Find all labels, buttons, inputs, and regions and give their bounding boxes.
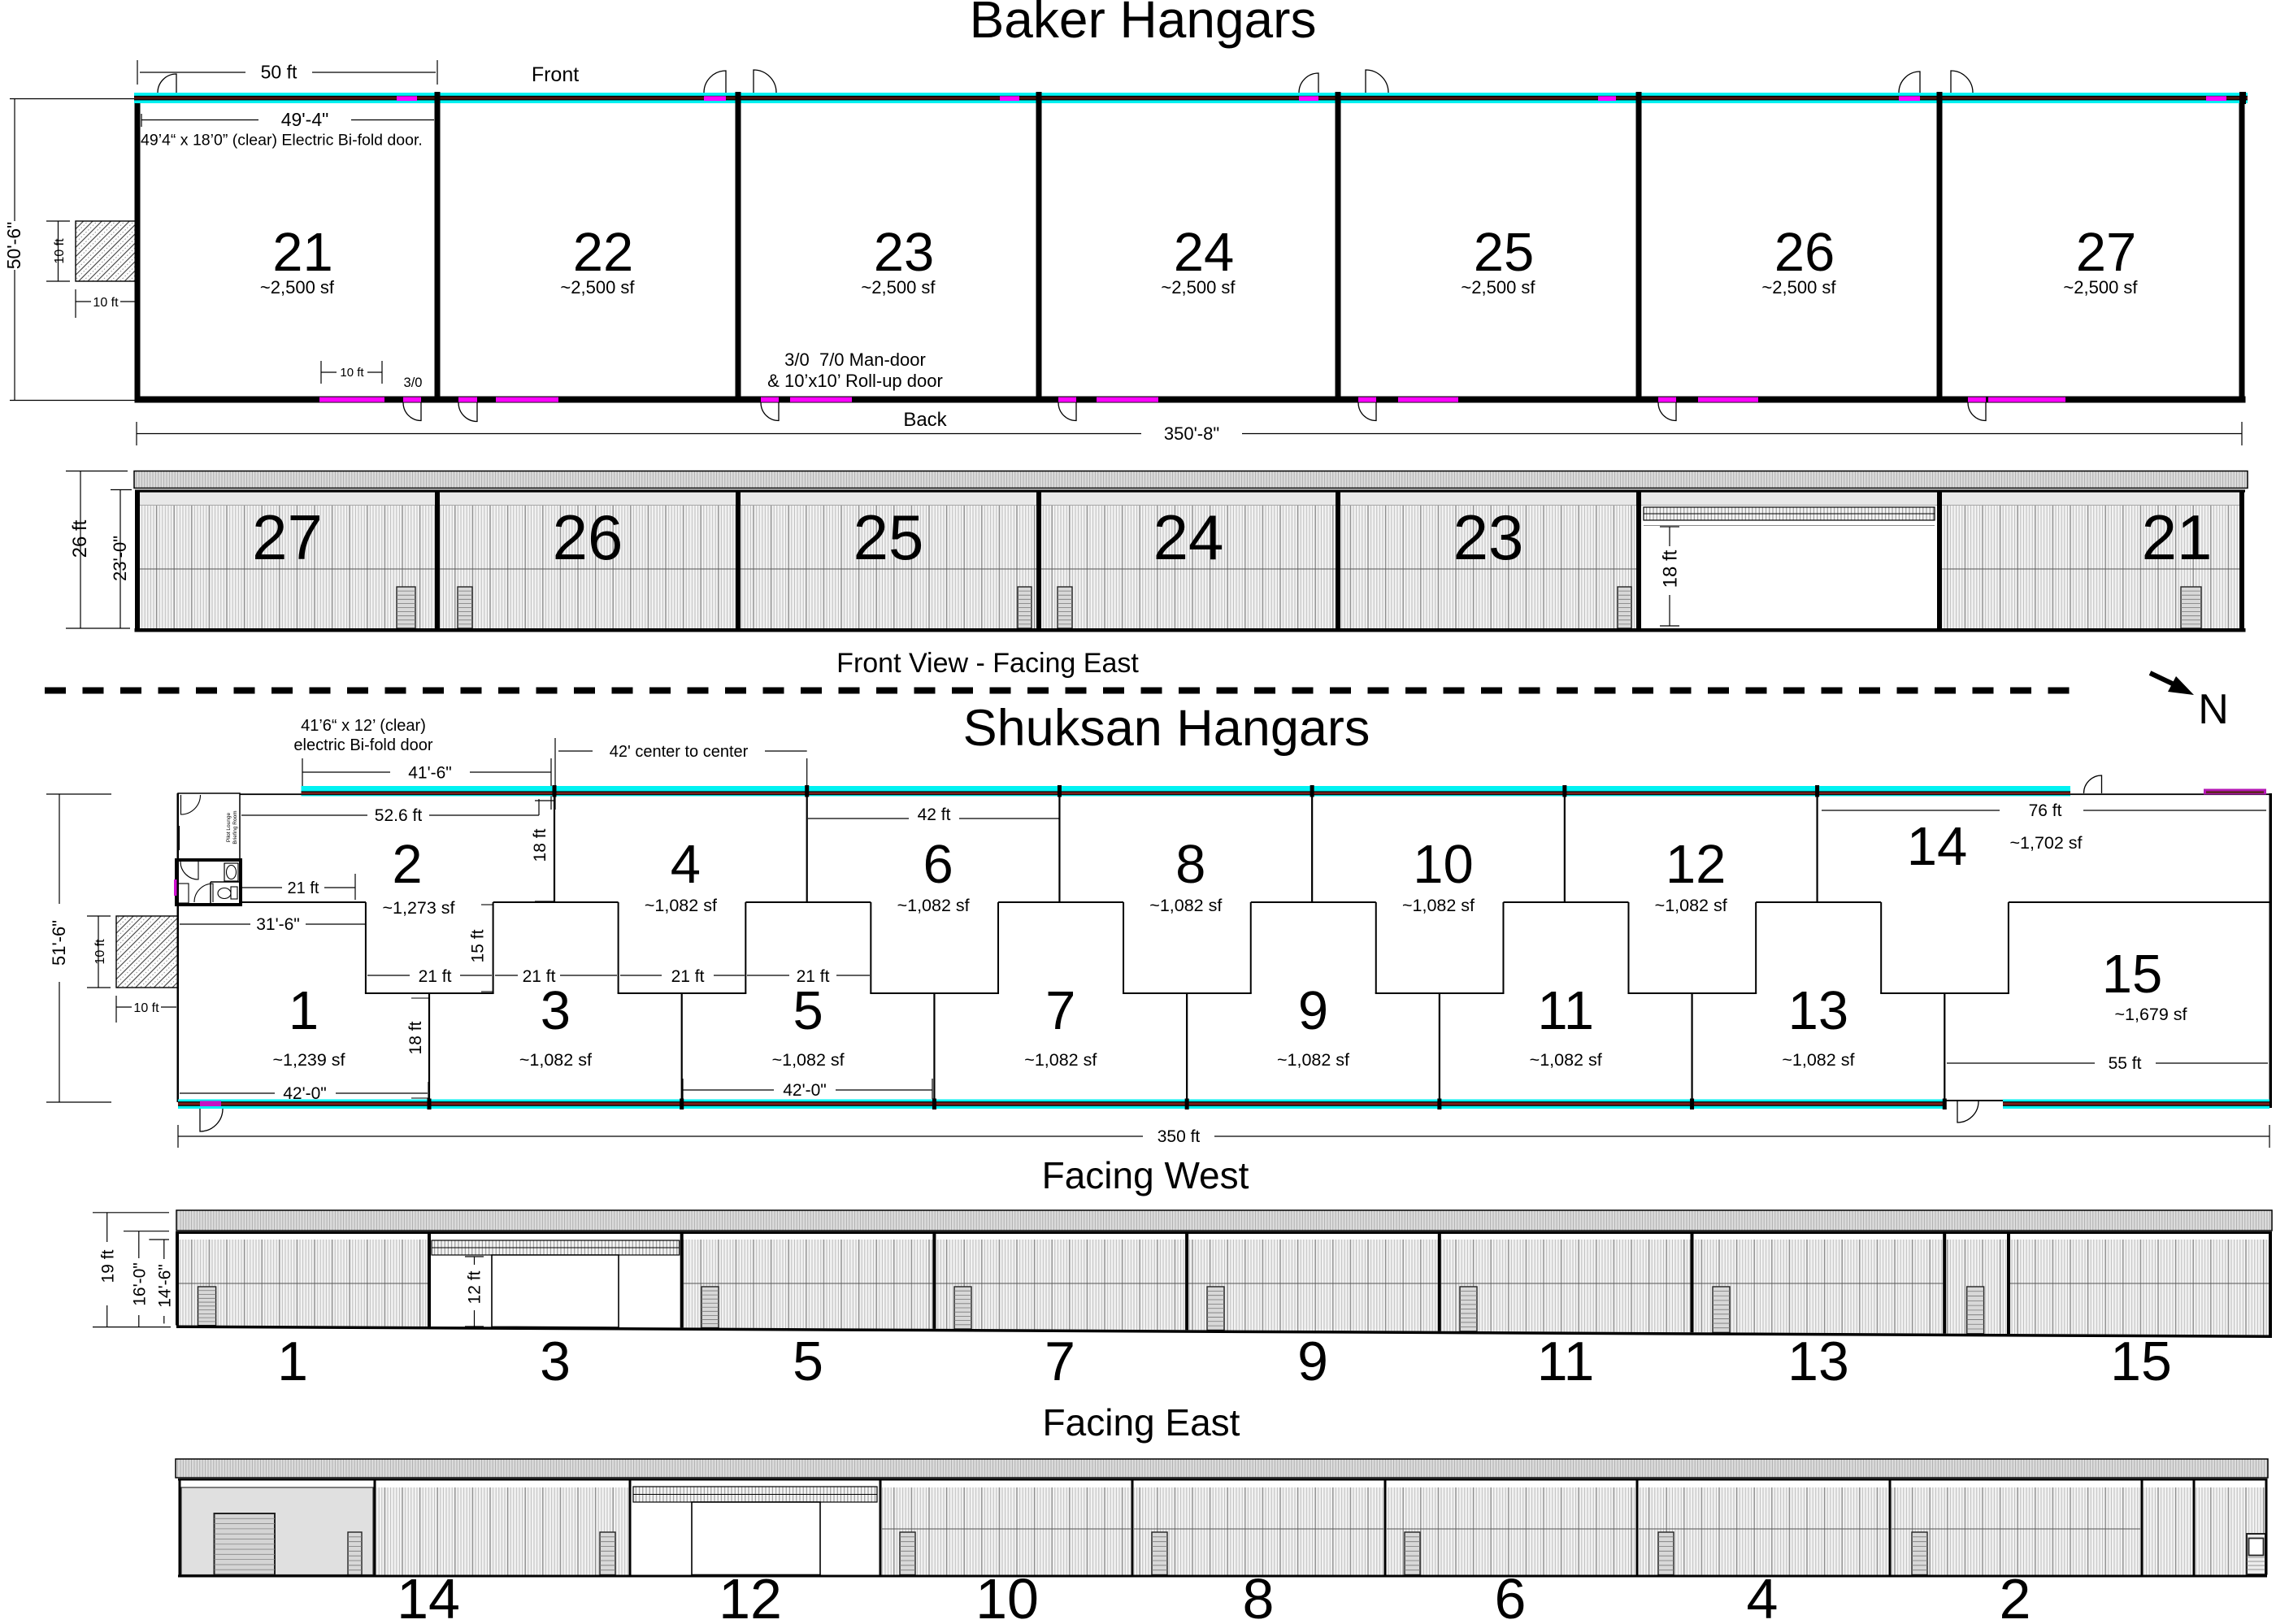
svg-text:~1,082 sf: ~1,082 sf	[1149, 896, 1222, 915]
svg-text:12: 12	[1666, 834, 1727, 895]
svg-text:2: 2	[392, 834, 422, 895]
svg-text:42 ft: 42 ft	[918, 805, 951, 824]
svg-text:50 ft: 50 ft	[261, 62, 298, 83]
svg-text:22: 22	[573, 222, 634, 283]
svg-text:~1,082 sf: ~1,082 sf	[519, 1050, 592, 1070]
svg-text:Facing East: Facing East	[1043, 1401, 1240, 1444]
svg-text:10 ft: 10 ft	[340, 366, 364, 380]
svg-text:25: 25	[853, 502, 924, 573]
svg-text:Shuksan Hangars: Shuksan Hangars	[963, 700, 1370, 757]
svg-text:21 ft: 21 ft	[419, 967, 452, 986]
svg-text:10 ft: 10 ft	[93, 296, 119, 310]
svg-text:2: 2	[2000, 1567, 2031, 1624]
svg-text:49'-4": 49'-4"	[281, 109, 329, 130]
svg-text:23'-0": 23'-0"	[110, 536, 130, 581]
svg-text:21 ft: 21 ft	[671, 967, 705, 986]
svg-text:Back: Back	[903, 409, 947, 431]
svg-text:42'-0": 42'-0"	[283, 1084, 327, 1103]
svg-text:76 ft: 76 ft	[2029, 801, 2062, 820]
svg-text:~2,500 sf: ~2,500 sf	[2063, 277, 2138, 297]
svg-text:3/0 7/0 Man-door: 3/0 7/0 Man-door	[784, 350, 926, 370]
svg-text:18 ft: 18 ft	[1660, 549, 1682, 588]
svg-text:9: 9	[1297, 1331, 1328, 1392]
svg-text:~1,273 sf: ~1,273 sf	[382, 898, 454, 918]
svg-text:24: 24	[1153, 502, 1224, 573]
svg-text:Baker Hangars: Baker Hangars	[970, 0, 1317, 49]
svg-text:18 ft: 18 ft	[406, 1021, 425, 1054]
svg-text:27: 27	[252, 502, 323, 573]
svg-text:6: 6	[1495, 1567, 1527, 1624]
svg-text:& 10’x10’ Roll-up door: & 10’x10’ Roll-up door	[767, 371, 943, 391]
svg-text:electric Bi-fold door: electric Bi-fold door	[293, 736, 433, 754]
svg-text:11: 11	[1537, 1331, 1595, 1392]
svg-text:~1,239 sf: ~1,239 sf	[272, 1050, 345, 1070]
svg-text:~2,500 sf: ~2,500 sf	[1461, 277, 1535, 297]
svg-text:~2,500 sf: ~2,500 sf	[1161, 277, 1236, 297]
svg-text:5: 5	[793, 980, 823, 1041]
svg-text:N: N	[2198, 686, 2229, 733]
svg-text:12 ft: 12 ft	[466, 1270, 484, 1304]
svg-text:Front: Front	[532, 63, 579, 86]
svg-text:~1,082 sf: ~1,082 sf	[1024, 1050, 1097, 1070]
svg-text:10 ft: 10 ft	[53, 238, 67, 264]
svg-text:10: 10	[1413, 834, 1474, 895]
svg-text:Front View - Facing East: Front View - Facing East	[836, 648, 1139, 679]
svg-text:350 ft: 350 ft	[1158, 1127, 1201, 1146]
svg-text:15: 15	[2110, 1331, 2172, 1392]
svg-text:14: 14	[1907, 816, 1968, 877]
svg-text:27: 27	[2076, 222, 2137, 283]
svg-text:~1,082 sf: ~1,082 sf	[1530, 1050, 1602, 1070]
svg-text:~2,500 sf: ~2,500 sf	[1761, 277, 1836, 297]
svg-text:42'-0": 42'-0"	[783, 1081, 827, 1100]
svg-text:8: 8	[1175, 834, 1205, 895]
svg-text:3: 3	[541, 980, 571, 1041]
svg-text:6: 6	[923, 834, 953, 895]
svg-text:31'-6": 31'-6"	[256, 915, 300, 934]
svg-text:~1,082 sf: ~1,082 sf	[1655, 896, 1727, 915]
svg-text:3: 3	[540, 1331, 571, 1392]
svg-text:~1,082 sf: ~1,082 sf	[1277, 1050, 1349, 1070]
svg-text:14: 14	[397, 1567, 460, 1624]
svg-text:1: 1	[289, 980, 319, 1041]
svg-text:21 ft: 21 ft	[288, 879, 319, 897]
svg-text:1: 1	[277, 1331, 308, 1392]
svg-text:15: 15	[2102, 944, 2163, 1005]
svg-text:50'-6": 50'-6"	[3, 222, 24, 270]
svg-text:49’4“ x 18’0” (clear) Electric: 49’4“ x 18’0” (clear) Electric Bi-fold d…	[141, 132, 423, 150]
svg-text:15 ft: 15 ft	[469, 929, 488, 962]
svg-text:55 ft: 55 ft	[2109, 1054, 2142, 1073]
svg-text:12: 12	[719, 1567, 782, 1624]
svg-text:~1,679 sf: ~1,679 sf	[2114, 1005, 2187, 1024]
svg-text:~1,082 sf: ~1,082 sf	[897, 896, 970, 915]
svg-text:13: 13	[1788, 980, 1849, 1041]
svg-text:5: 5	[793, 1331, 823, 1392]
svg-text:51'-6": 51'-6"	[49, 920, 69, 966]
svg-text:~2,500 sf: ~2,500 sf	[861, 277, 936, 297]
svg-text:4: 4	[1747, 1567, 1779, 1624]
svg-text:~1,082 sf: ~1,082 sf	[1402, 896, 1475, 915]
svg-text:16'-0": 16'-0"	[131, 1262, 150, 1306]
svg-text:Briefing Room: Briefing Room	[232, 810, 238, 844]
svg-text:52.6 ft: 52.6 ft	[375, 806, 423, 825]
svg-text:~1,082 sf: ~1,082 sf	[645, 896, 717, 915]
svg-text:21: 21	[2142, 502, 2213, 573]
svg-text:23: 23	[874, 222, 935, 283]
svg-text:25: 25	[1474, 222, 1535, 283]
svg-text:~2,500 sf: ~2,500 sf	[260, 277, 335, 297]
svg-text:10: 10	[975, 1567, 1039, 1624]
svg-text:10 ft: 10 ft	[133, 1001, 159, 1015]
svg-text:42' center to center: 42' center to center	[610, 743, 749, 761]
svg-text:~1,702 sf: ~1,702 sf	[2009, 833, 2082, 853]
svg-text:~1,082 sf: ~1,082 sf	[1782, 1050, 1854, 1070]
svg-text:Facing West: Facing West	[1042, 1154, 1249, 1196]
svg-text:11: 11	[1537, 980, 1594, 1041]
svg-text:21: 21	[272, 222, 333, 283]
svg-text:19 ft: 19 ft	[99, 1249, 118, 1283]
svg-text:23: 23	[1453, 502, 1524, 573]
svg-text:14'-6": 14'-6"	[156, 1264, 175, 1308]
svg-text:18 ft: 18 ft	[531, 828, 549, 862]
svg-text:9: 9	[1298, 980, 1328, 1041]
svg-text:10 ft: 10 ft	[93, 939, 107, 965]
svg-text:26: 26	[1774, 222, 1835, 283]
svg-text:26 ft: 26 ft	[69, 519, 91, 558]
svg-text:41’6“ x 12’ (clear): 41’6“ x 12’ (clear)	[301, 717, 426, 735]
svg-text:7: 7	[1045, 1331, 1075, 1392]
svg-text:41'-6": 41'-6"	[408, 764, 452, 783]
svg-text:24: 24	[1174, 222, 1235, 283]
svg-text:8: 8	[1243, 1567, 1275, 1624]
svg-text:4: 4	[671, 834, 701, 895]
svg-text:3/0: 3/0	[404, 376, 423, 390]
svg-text:13: 13	[1787, 1331, 1849, 1392]
svg-text:Pilot Lounge: Pilot Lounge	[226, 813, 232, 843]
svg-text:26: 26	[553, 502, 623, 573]
svg-text:7: 7	[1045, 980, 1075, 1041]
svg-text:~2,500 sf: ~2,500 sf	[560, 277, 635, 297]
svg-text:350'-8": 350'-8"	[1164, 423, 1219, 444]
svg-text:~1,082 sf: ~1,082 sf	[772, 1050, 845, 1070]
